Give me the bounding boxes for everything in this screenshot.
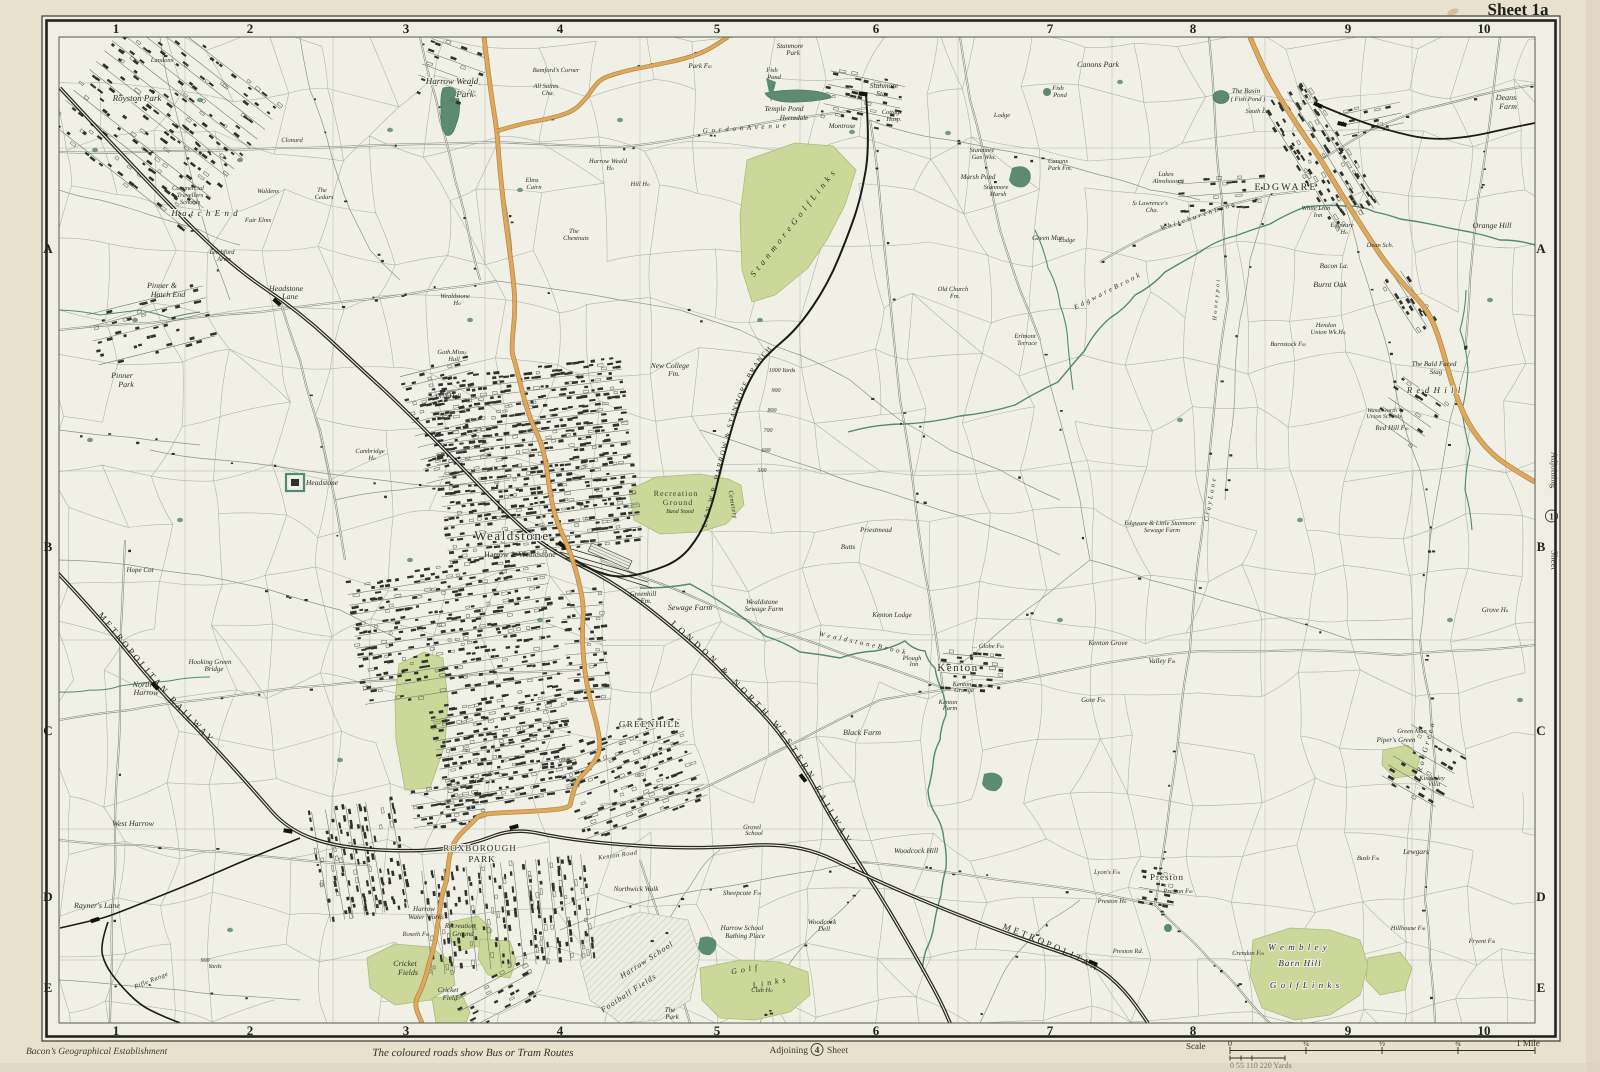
svg-text:Adjoining: Adjoining — [1550, 452, 1560, 489]
svg-text:Sta.: Sta. — [876, 89, 888, 98]
svg-text:Lane: Lane — [281, 292, 298, 301]
svg-text:Harrow: Harrow — [132, 688, 159, 697]
svg-text:Ho: Ho — [1339, 229, 1348, 236]
svg-text:Stag: Stag — [1430, 368, 1443, 376]
svg-text:5: 5 — [714, 1023, 721, 1038]
svg-text:Park: Park — [785, 49, 801, 57]
svg-text:Fm.: Fm. — [949, 293, 961, 300]
svg-text:Black Farm: Black Farm — [843, 728, 881, 737]
svg-text:The coloured roads show Bus or: The coloured roads show Bus or Tram Rout… — [372, 1047, 573, 1059]
svg-text:7: 7 — [1047, 21, 1054, 36]
svg-text:2: 2 — [247, 1023, 254, 1038]
svg-text:White Lion: White Lion — [1302, 205, 1331, 212]
svg-text:South La.: South La. — [1246, 108, 1271, 115]
svg-text:Elms: Elms — [525, 177, 539, 184]
svg-text:Drill Hall: Drill Hall — [434, 393, 461, 400]
svg-text:Water Works: Water Works — [408, 913, 444, 921]
svg-text:Valley Fm: Valley Fm — [1149, 657, 1176, 665]
svg-text:Bathing Place: Bathing Place — [725, 932, 765, 940]
svg-text:Ground: Ground — [663, 498, 693, 507]
svg-text:9: 9 — [1345, 21, 1352, 36]
svg-text:Royston Park: Royston Park — [112, 93, 163, 103]
svg-text:Bacon La.: Bacon La. — [1320, 262, 1349, 270]
svg-text:D: D — [43, 889, 52, 904]
svg-text:Edgware & Little Stanmore: Edgware & Little Stanmore — [1123, 520, 1196, 527]
svg-text:Farm: Farm — [942, 705, 958, 712]
svg-text:Recreation: Recreation — [654, 489, 699, 498]
svg-text:3: 3 — [403, 1023, 410, 1038]
svg-text:Kenton Grove: Kenton Grove — [1087, 639, 1127, 647]
svg-text:Hillhouse Fm: Hillhouse Fm — [1390, 925, 1426, 932]
svg-text:Gas Wks.: Gas Wks. — [972, 154, 997, 161]
svg-text:Edgware: Edgware — [1329, 222, 1353, 229]
svg-text:500: 500 — [758, 468, 767, 474]
svg-text:( Fish Pond ): ( Fish Pond ) — [1231, 96, 1265, 103]
svg-text:Clonard: Clonard — [281, 137, 303, 144]
svg-text:Villa: Villa — [1428, 781, 1440, 788]
svg-text:Temple Pond: Temple Pond — [764, 104, 803, 113]
svg-text:All Saints: All Saints — [532, 83, 559, 90]
svg-text:Park Fm.: Park Fm. — [1047, 165, 1073, 172]
svg-text:Park: Park — [117, 380, 134, 389]
svg-text:EDGWARE: EDGWARE — [1255, 182, 1318, 193]
svg-text:Roseth Fm: Roseth Fm — [402, 931, 430, 938]
svg-text:A: A — [43, 241, 53, 256]
svg-text:Sewage Farm: Sewage Farm — [745, 605, 784, 613]
svg-text:A: A — [1536, 241, 1546, 256]
svg-text:E: E — [1537, 980, 1546, 995]
svg-text:E: E — [44, 980, 53, 995]
svg-text:Letchford: Letchford — [208, 249, 235, 256]
svg-text:Preston: Preston — [1150, 872, 1184, 882]
svg-text:900: 900 — [772, 388, 781, 394]
svg-text:Lodge: Lodge — [993, 112, 1010, 119]
svg-text:1000 Yards: 1000 Yards — [769, 367, 796, 374]
svg-text:Union Schools: Union Schools — [1366, 413, 1402, 420]
svg-text:St Lawrence's: St Lawrence's — [1132, 200, 1168, 207]
svg-text:Piper's Green: Piper's Green — [1376, 736, 1416, 744]
svg-text:C: C — [1536, 723, 1545, 738]
svg-text:6: 6 — [873, 21, 880, 36]
svg-text:Burnstock Fm: Burnstock Fm — [1270, 341, 1306, 348]
svg-text:Sewage Farm: Sewage Farm — [668, 603, 712, 612]
svg-text:Park: Park — [455, 89, 475, 99]
svg-text:Bridge: Bridge — [204, 665, 223, 673]
svg-text:Northwick Walk: Northwick Walk — [613, 885, 660, 893]
svg-text:Pinner &: Pinner & — [146, 281, 178, 290]
svg-text:Hatch End: Hatch End — [150, 290, 186, 299]
svg-text:Cricket: Cricket — [438, 986, 460, 994]
svg-text:Pond: Pond — [1052, 92, 1067, 99]
svg-text:6: 6 — [873, 1023, 880, 1038]
svg-text:Burnt Oak: Burnt Oak — [1313, 280, 1347, 289]
svg-text:Pond: Pond — [766, 74, 781, 81]
svg-text:1 Mile: 1 Mile — [1516, 1038, 1540, 1048]
svg-text:Stanmore: Stanmore — [970, 147, 995, 154]
svg-text:Canons Park: Canons Park — [1077, 60, 1119, 69]
svg-text:PARK: PARK — [468, 854, 495, 864]
svg-text:Bacon’s Geographical Establish: Bacon’s Geographical Establishment — [26, 1047, 168, 1057]
svg-text:Lewgars: Lewgars — [1402, 847, 1429, 856]
svg-text:Bush Fm: Bush Fm — [1357, 855, 1380, 862]
svg-text:1: 1 — [113, 1023, 120, 1038]
svg-text:Field: Field — [442, 994, 458, 1002]
svg-text:Grange: Grange — [954, 687, 974, 694]
svg-text:¾: ¾ — [1455, 1039, 1461, 1048]
svg-text:B: B — [44, 539, 53, 554]
svg-text:Erlmont: Erlmont — [1013, 333, 1036, 340]
svg-text:10: 10 — [1478, 1023, 1491, 1038]
svg-text:ROXBOROUGH: ROXBOROUGH — [443, 843, 517, 853]
svg-text:Priestmead: Priestmead — [859, 526, 892, 534]
svg-text:4: 4 — [815, 1046, 820, 1056]
svg-text:Ho: Ho — [367, 455, 376, 462]
svg-text:The: The — [569, 228, 579, 235]
svg-text:Headstone: Headstone — [305, 478, 339, 487]
svg-text:4: 4 — [557, 1023, 564, 1038]
svg-text:D: D — [1536, 889, 1545, 904]
svg-text:Sewage Farm: Sewage Farm — [1144, 527, 1180, 534]
svg-text:700: 700 — [764, 428, 773, 434]
svg-text:Hendon: Hendon — [1315, 322, 1337, 329]
svg-text:2: 2 — [247, 21, 254, 36]
svg-text:Sheepcote Fm: Sheepcote Fm — [723, 889, 761, 897]
svg-text:7: 7 — [1047, 1023, 1054, 1038]
svg-text:0: 0 — [1228, 1039, 1232, 1048]
svg-text:Hosp.: Hosp. — [885, 116, 902, 123]
svg-text:8: 8 — [1190, 21, 1197, 36]
svg-text:Terrace: Terrace — [1017, 340, 1037, 347]
svg-text:Cedars: Cedars — [315, 194, 334, 201]
svg-text:Kenton Lodge: Kenton Lodge — [871, 611, 911, 619]
svg-text:8: 8 — [1190, 1023, 1197, 1038]
svg-text:Inn: Inn — [1313, 212, 1323, 219]
svg-text:Park: Park — [664, 1013, 680, 1021]
svg-text:Union Wk.Ho: Union Wk.Ho — [1311, 329, 1347, 336]
svg-text:Cairn: Cairn — [526, 184, 541, 191]
svg-text:Cha.: Cha. — [1146, 207, 1159, 214]
svg-text:Landons: Landons — [150, 57, 174, 64]
svg-text:Harrow & Wealdstone: Harrow & Wealdstone — [484, 550, 556, 559]
svg-text:Ground: Ground — [452, 930, 474, 938]
svg-text:Band Stand: Band Stand — [666, 508, 695, 515]
svg-text:Harrow: Harrow — [412, 905, 435, 913]
svg-text:Fryent Fm: Fryent Fm — [1468, 938, 1496, 945]
svg-text:Travellers: Travellers — [177, 192, 204, 199]
svg-text:Sheet: Sheet — [827, 1046, 848, 1056]
svg-text:Harrow School: Harrow School — [720, 924, 764, 932]
svg-text:Sheet: Sheet — [1550, 550, 1560, 570]
svg-text:Cambridge: Cambridge — [355, 448, 384, 455]
svg-text:10: 10 — [1478, 21, 1491, 36]
svg-text:Fm.: Fm. — [639, 597, 651, 605]
svg-text:The: The — [317, 187, 327, 194]
svg-text:W e m b l e y: W e m b l e y — [1268, 942, 1327, 952]
svg-text:G o l f L i n k s: G o l f L i n k s — [1270, 980, 1340, 990]
svg-text:H a t c h E n d: H a t c h E n d — [170, 208, 238, 218]
svg-text:Old Church: Old Church — [938, 286, 969, 293]
svg-text:Wealdstone: Wealdstone — [440, 293, 470, 300]
svg-text:½: ½ — [1379, 1039, 1385, 1048]
svg-text:Grove Ho: Grove Ho — [1482, 606, 1509, 614]
svg-text:Cricket: Cricket — [393, 959, 417, 968]
svg-text:Fish: Fish — [1051, 85, 1064, 92]
svg-text:School: School — [745, 830, 763, 837]
svg-text:Marsh Pond: Marsh Pond — [960, 173, 996, 181]
svg-text:Kenton: Kenton — [937, 662, 978, 674]
svg-text:West Harrow: West Harrow — [112, 819, 155, 828]
svg-text:Wealdstone: Wealdstone — [474, 528, 549, 543]
svg-text:Crendon Fm: Crendon Fm — [1232, 950, 1264, 957]
svg-text:B: B — [1537, 539, 1546, 554]
svg-text:Woodcock Hill: Woodcock Hill — [894, 846, 938, 855]
svg-text:C: C — [43, 723, 52, 738]
svg-text:Chestnuts: Chestnuts — [563, 235, 589, 242]
svg-text:... Globe Fm: ... Globe Fm — [972, 643, 1004, 650]
svg-text:Hill Ho: Hill Ho — [630, 181, 650, 188]
svg-text:Deans: Deans — [1495, 93, 1516, 102]
svg-text:Adjoining: Adjoining — [769, 1046, 808, 1056]
svg-text:Ho: Ho — [605, 165, 614, 172]
svg-text:The Bald Faced: The Bald Faced — [1412, 360, 1457, 368]
svg-text:4: 4 — [557, 21, 564, 36]
svg-text:Butts: Butts — [841, 543, 856, 551]
svg-text:Ho: Ho — [452, 300, 461, 307]
svg-text:Bamford's Corner: Bamford's Corner — [533, 67, 580, 74]
svg-text:Arms: Arms — [216, 256, 231, 263]
svg-text:Orange Hill: Orange Hill — [1473, 221, 1513, 230]
svg-text:Goth.Missy: Goth.Missy — [437, 349, 467, 356]
svg-text:Preston Fm: Preston Fm — [1162, 888, 1193, 895]
svg-text:Green Man: Green Man — [1397, 728, 1427, 735]
svg-text:Barn Hill: Barn Hill — [1278, 958, 1321, 968]
svg-text:Club Ho: Club Ho — [751, 987, 773, 994]
svg-text:Sheet 1a: Sheet 1a — [1488, 0, 1549, 19]
svg-text:Red Hill Fm: Red Hill Fm — [1374, 424, 1409, 432]
svg-text:Inn: Inn — [909, 661, 919, 668]
svg-text:Farm: Farm — [1498, 102, 1517, 111]
svg-text:Schools: Schools — [180, 199, 201, 206]
svg-text:9: 9 — [1345, 1023, 1352, 1038]
svg-text:Harrow Weald: Harrow Weald — [588, 158, 628, 165]
svg-text:5: 5 — [714, 21, 721, 36]
svg-text:Fm.: Fm. — [667, 369, 680, 378]
svg-text:Stanmore: Stanmore — [984, 184, 1009, 191]
svg-text:Preston Ho: Preston Ho — [1097, 898, 1127, 905]
svg-text:1: 1 — [1549, 513, 1554, 523]
svg-text:1: 1 — [113, 21, 120, 36]
svg-text:800: 800 — [768, 408, 777, 414]
svg-text:R e d H i l l: R e d H i l l — [1406, 385, 1462, 395]
svg-text:Green Man: Green Man — [1032, 234, 1064, 242]
svg-text:Almshouses: Almshouses — [1152, 178, 1184, 185]
svg-text:3: 3 — [403, 21, 410, 36]
svg-text:Wandsworth: Wandsworth — [1367, 407, 1397, 414]
svg-text:Fish: Fish — [765, 67, 778, 74]
svg-text:Montrose: Montrose — [828, 122, 856, 130]
svg-text:Dell: Dell — [817, 925, 830, 933]
svg-text:Cha.: Cha. — [542, 90, 555, 97]
svg-text:Hall: Hall — [447, 356, 460, 363]
svg-text:Canons: Canons — [1048, 158, 1068, 165]
svg-text:Marsh: Marsh — [989, 191, 1007, 198]
svg-text:Lukes: Lukes — [1157, 171, 1174, 178]
svg-text:600: 600 — [762, 448, 771, 454]
svg-text:GREENHILL: GREENHILL — [619, 719, 681, 729]
svg-text:Dean Sch.: Dean Sch. — [1366, 242, 1394, 249]
svg-text:Preston Rd.: Preston Rd. — [1112, 948, 1144, 955]
svg-text:Fair Elms: Fair Elms — [244, 217, 272, 224]
svg-text:Rayner's Lane: Rayner's Lane — [73, 901, 120, 910]
svg-text:Harrow Weald: Harrow Weald — [425, 76, 479, 86]
svg-text:Waldens: Waldens — [257, 188, 279, 195]
svg-text:Yards: Yards — [208, 963, 222, 970]
svg-text:Scale: Scale — [1186, 1041, 1206, 1051]
svg-text:Hope Cot: Hope Cot — [125, 566, 154, 574]
svg-text:¼: ¼ — [1303, 1039, 1309, 1048]
svg-text:The Basin: The Basin — [1232, 87, 1261, 95]
svg-text:Lyon's Fm: Lyon's Fm — [1093, 869, 1120, 876]
svg-text:Cottage: Cottage — [882, 109, 903, 116]
svg-text:Recreation: Recreation — [444, 922, 476, 930]
svg-text:Pinner: Pinner — [110, 371, 134, 380]
svg-text:Commercial: Commercial — [172, 185, 204, 192]
svg-text:Fields: Fields — [397, 968, 418, 977]
